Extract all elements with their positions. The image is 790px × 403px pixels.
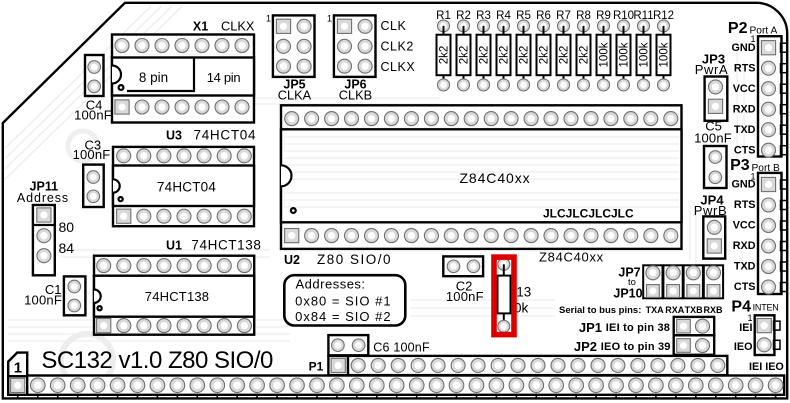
svg-text:JP1: JP1 (579, 320, 602, 335)
svg-text:Z84C40xx: Z84C40xx (539, 250, 604, 265)
svg-text:0x80 = SIO #1: 0x80 = SIO #1 (295, 293, 391, 308)
svg-text:RTS: RTS (734, 199, 756, 211)
svg-text:1: 1 (14, 360, 22, 377)
svg-text:8 pin: 8 pin (139, 70, 168, 85)
svg-text:100k: 100k (659, 42, 671, 67)
svg-text:C6 100nF: C6 100nF (373, 340, 430, 354)
svg-text:TXA: TXA (646, 305, 665, 315)
svg-text:U2: U2 (284, 253, 300, 267)
svg-text:X1: X1 (193, 20, 208, 34)
svg-text:GND: GND (732, 179, 756, 191)
svg-text:Z80 SIO/0: Z80 SIO/0 (317, 252, 392, 267)
svg-text:RXD: RXD (733, 240, 756, 252)
svg-text:VCC: VCC (733, 220, 756, 232)
svg-text:RXA: RXA (665, 305, 685, 315)
svg-text:100nF: 100nF (73, 147, 111, 162)
svg-text:P3: P3 (730, 157, 750, 174)
svg-text:74HCT138: 74HCT138 (145, 289, 209, 304)
svg-text:P2: P2 (728, 20, 748, 37)
svg-text:2k2: 2k2 (539, 46, 551, 65)
svg-text:1: 1 (266, 14, 271, 24)
svg-text:Serial to bus pins:: Serial to bus pins: (559, 305, 641, 316)
svg-text:CLKX: CLKX (221, 19, 255, 34)
svg-text:IEO: IEO (734, 341, 753, 353)
svg-text:GND: GND (732, 42, 756, 54)
svg-text:100k: 100k (639, 42, 651, 67)
svg-text:2k2: 2k2 (559, 46, 571, 65)
svg-text:CTS: CTS (734, 144, 756, 156)
svg-text:JP2: JP2 (574, 339, 597, 354)
svg-text:84: 84 (59, 240, 75, 256)
svg-text:IEI to pin 38: IEI to pin 38 (606, 322, 670, 334)
svg-text:INTEN: INTEN (753, 303, 779, 313)
svg-text:2k2: 2k2 (479, 46, 491, 65)
svg-text:74HCT138: 74HCT138 (191, 238, 261, 253)
svg-text:2k2: 2k2 (439, 46, 451, 65)
svg-text:U3: U3 (166, 129, 182, 143)
svg-text:100nF: 100nF (694, 130, 732, 145)
svg-text:P1: P1 (309, 360, 324, 374)
svg-text:CTS: CTS (734, 281, 756, 293)
svg-text:U1: U1 (166, 239, 182, 253)
svg-text:74HCT04: 74HCT04 (194, 128, 257, 143)
svg-text:TXB: TXB (685, 305, 704, 315)
svg-text:IEI IEO: IEI IEO (749, 361, 784, 373)
svg-text:IEI: IEI (739, 322, 752, 334)
svg-text:2k2: 2k2 (459, 46, 471, 65)
svg-text:CLK: CLK (381, 19, 407, 33)
svg-text:2k2: 2k2 (579, 46, 591, 65)
svg-text:1: 1 (327, 14, 332, 24)
svg-text:TXD: TXD (734, 124, 756, 136)
svg-text:100nF: 100nF (24, 293, 62, 308)
svg-text:CLKB: CLKB (339, 88, 372, 103)
svg-text:0x84 = SIO #2: 0x84 = SIO #2 (295, 309, 391, 324)
svg-text:100nF: 100nF (74, 108, 112, 123)
svg-text:100k: 100k (599, 42, 611, 67)
svg-text:80: 80 (59, 219, 75, 235)
svg-text:14 pin: 14 pin (207, 70, 241, 85)
svg-text:IEO to pin 39: IEO to pin 39 (601, 341, 671, 353)
svg-text:SC132 v1.0 Z80 SIO/0: SC132 v1.0 Z80 SIO/0 (41, 347, 273, 374)
svg-text:JP10: JP10 (613, 287, 642, 301)
svg-text:Z84C40xx: Z84C40xx (459, 170, 530, 186)
svg-text:2k2: 2k2 (499, 46, 511, 65)
svg-text:TXD: TXD (734, 261, 756, 273)
svg-text:Addresses:: Addresses: (296, 277, 366, 292)
svg-text:JLCJLCJLCJLC: JLCJLCJLCJLC (543, 207, 634, 221)
svg-text:PwrA: PwrA (695, 62, 728, 77)
svg-text:74HCT04: 74HCT04 (157, 180, 216, 195)
svg-text:RXB: RXB (703, 305, 723, 315)
svg-text:RTS: RTS (734, 62, 756, 74)
svg-text:CLK2: CLK2 (381, 40, 414, 54)
svg-text:100nF: 100nF (446, 289, 484, 304)
svg-text:VCC: VCC (733, 83, 756, 95)
svg-text:Address: Address (17, 191, 69, 205)
svg-text:2k2: 2k2 (519, 46, 531, 65)
svg-text:100k: 100k (619, 42, 631, 67)
svg-text:CLKX: CLKX (381, 60, 416, 74)
svg-text:CLKA: CLKA (278, 88, 312, 103)
svg-text:RXD: RXD (733, 103, 756, 115)
